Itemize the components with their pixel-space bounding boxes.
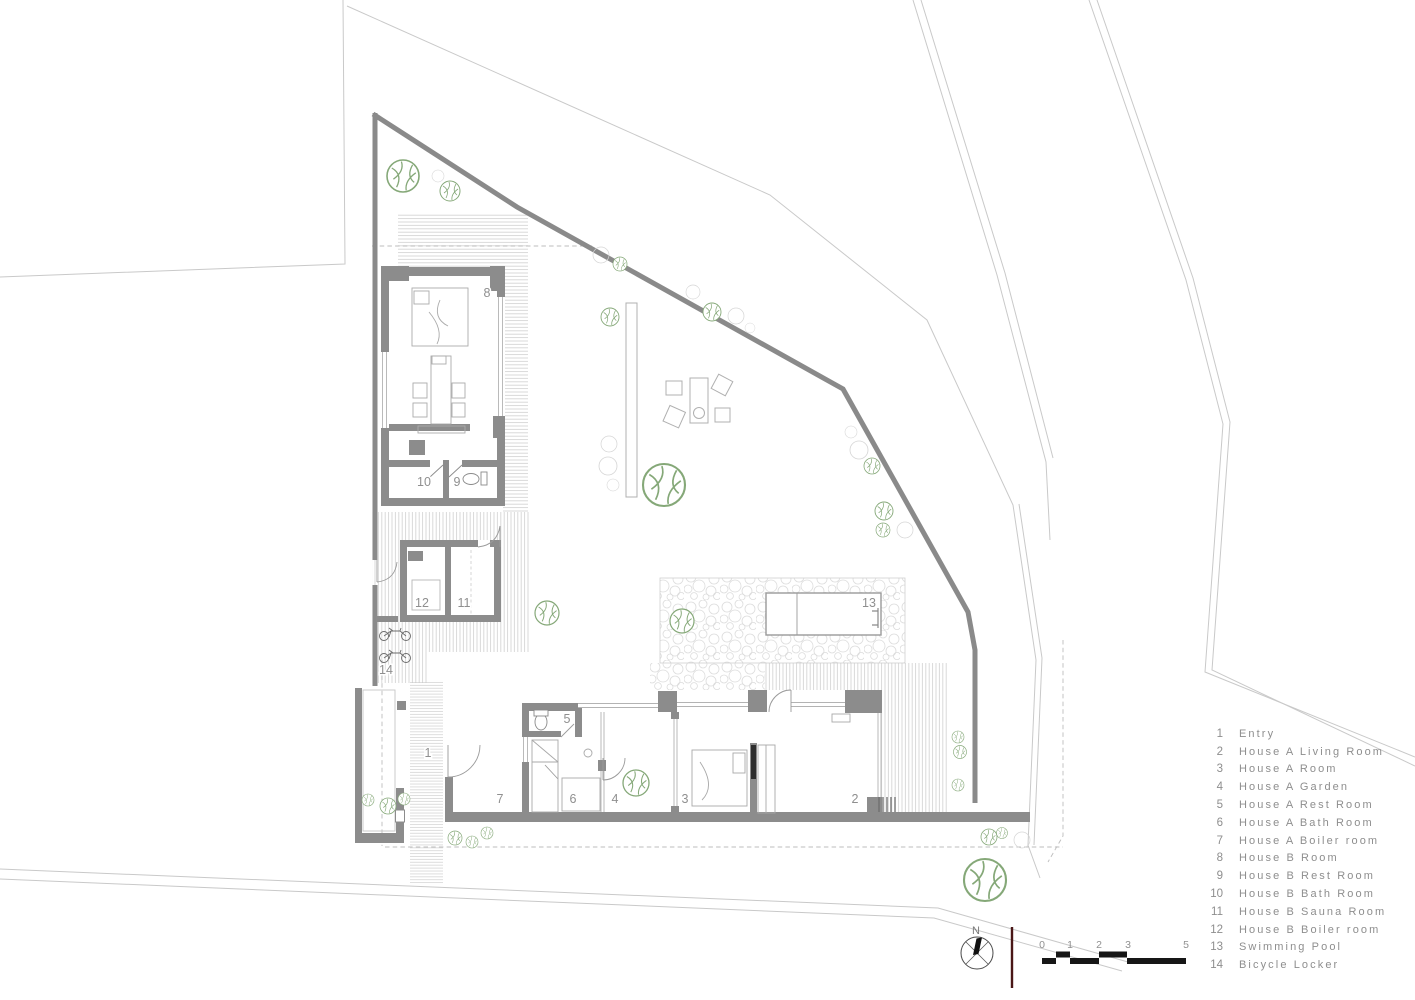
legend-label: House A Room [1239,763,1338,775]
house-a-deck-north [765,663,947,690]
room-label-rest-b: 9 [454,475,461,489]
house-a-deck-east [880,690,947,812]
legend-number: 1 [1207,728,1223,740]
legend-label: House B Room [1239,852,1339,864]
legend-number: 9 [1207,870,1223,882]
legend-row: 12House B Boiler room [1207,921,1412,939]
property-line-west [0,0,345,277]
carport [355,688,406,843]
boiler-unit [408,551,423,561]
site-plan-page: 1 2 3 4 5 6 7 8 9 10 11 12 13 14 N 0 1 2… [0,0,1415,1000]
legend: 1Entry 2House A Living Room 3House A Roo… [1207,725,1412,974]
room-label-bicycle: 14 [379,663,393,677]
room-label-room-b: 8 [484,286,491,300]
north-label: N [972,925,980,937]
outdoor-chair [715,408,730,422]
legend-row: 9House B Rest Room [1207,867,1412,885]
toilet-room9 [463,472,487,485]
legend-number: 8 [1207,852,1223,864]
scale-tick: 1 [1067,939,1073,951]
legend-label: House A Boiler room [1239,835,1379,847]
house-b-deck-north [398,213,528,270]
legend-label: House A Rest Room [1239,799,1374,811]
legend-number: 5 [1207,799,1223,811]
outdoor-chair [666,381,682,395]
house-b-deck-east [503,270,528,512]
legend-number: 2 [1207,746,1223,758]
deck-door-arc [769,690,791,712]
legend-label: House B Sauna Room [1239,906,1386,918]
site-plan-drawing: 1 2 3 4 5 6 7 8 9 10 11 12 13 14 N 0 1 2… [0,0,1415,1000]
north-arrow: N [961,925,1012,988]
room-label-living: 2 [852,792,859,806]
legend-number: 13 [1207,941,1223,953]
road-upper [913,0,1050,540]
scale-tick: 0 [1039,939,1045,951]
legend-row: 10House B Bath Room [1207,885,1412,903]
legend-label: House B Bath Room [1239,888,1375,900]
legend-row: 2House A Living Room [1207,743,1412,761]
legend-row: 11House B Sauna Room [1207,903,1412,921]
legend-row: 1Entry [1207,725,1412,743]
legend-number: 7 [1207,835,1223,847]
house-a-south-wall [445,812,1030,822]
context-lines [0,0,1415,971]
garden-bench-wall [626,303,637,497]
legend-number: 11 [1207,906,1223,918]
legend-row: 3House A Room [1207,761,1412,779]
courtyard [626,303,733,497]
legend-label: House A Living Room [1239,746,1384,758]
legend-row: 14Bicycle Locker [1207,956,1412,974]
room-label-sauna: 11 [458,596,471,610]
legend-label: House A Bath Room [1239,817,1374,829]
outdoor-chair [711,374,733,396]
legend-number: 4 [1207,781,1223,793]
legend-number: 6 [1207,817,1223,829]
room-label-room-a: 3 [682,792,689,806]
outdoor-table [690,378,708,423]
house-b [381,266,505,506]
legend-number: 14 [1207,959,1223,971]
legend-row: 7House A Boiler room [1207,832,1412,850]
pebble-patio-ext [650,663,765,690]
legend-row: 5House A Rest Room [1207,796,1412,814]
road-bottom [0,869,1128,962]
road-right [1089,0,1415,757]
legend-row: 13Swimming Pool [1207,939,1412,957]
scale-tick: 3 [1125,939,1131,951]
legend-number: 3 [1207,763,1223,775]
entry-path [410,680,443,885]
legend-label: Swimming Pool [1239,941,1342,953]
legend-label: Bicycle Locker [1239,959,1339,971]
toilet-room5 [534,710,548,730]
room-label-entry: 1 [425,746,432,760]
room-label-boiler-a: 7 [497,792,504,806]
legend-number: 10 [1207,888,1223,900]
room-label-rest-a: 5 [564,712,571,726]
room-label-garden: 4 [612,792,619,806]
legend-row: 6House A Bath Room [1207,814,1412,832]
scale-tick: 5 [1183,939,1189,951]
scale-tick: 2 [1096,939,1102,951]
legend-row: 8House B Room [1207,850,1412,868]
room-label-boiler-b: 12 [415,596,429,610]
legend-label: House B Boiler room [1239,924,1380,936]
legend-label: House B Rest Room [1239,870,1375,882]
room-label-bath-a: 6 [570,792,577,806]
legend-row: 4House A Garden [1207,778,1412,796]
room-label-bath-b: 10 [417,475,431,489]
outdoor-chair [663,405,685,427]
legend-number: 12 [1207,924,1223,936]
room-label-pool: 13 [862,596,876,610]
legend-label: House A Garden [1239,781,1349,793]
legend-label: Entry [1239,728,1275,740]
